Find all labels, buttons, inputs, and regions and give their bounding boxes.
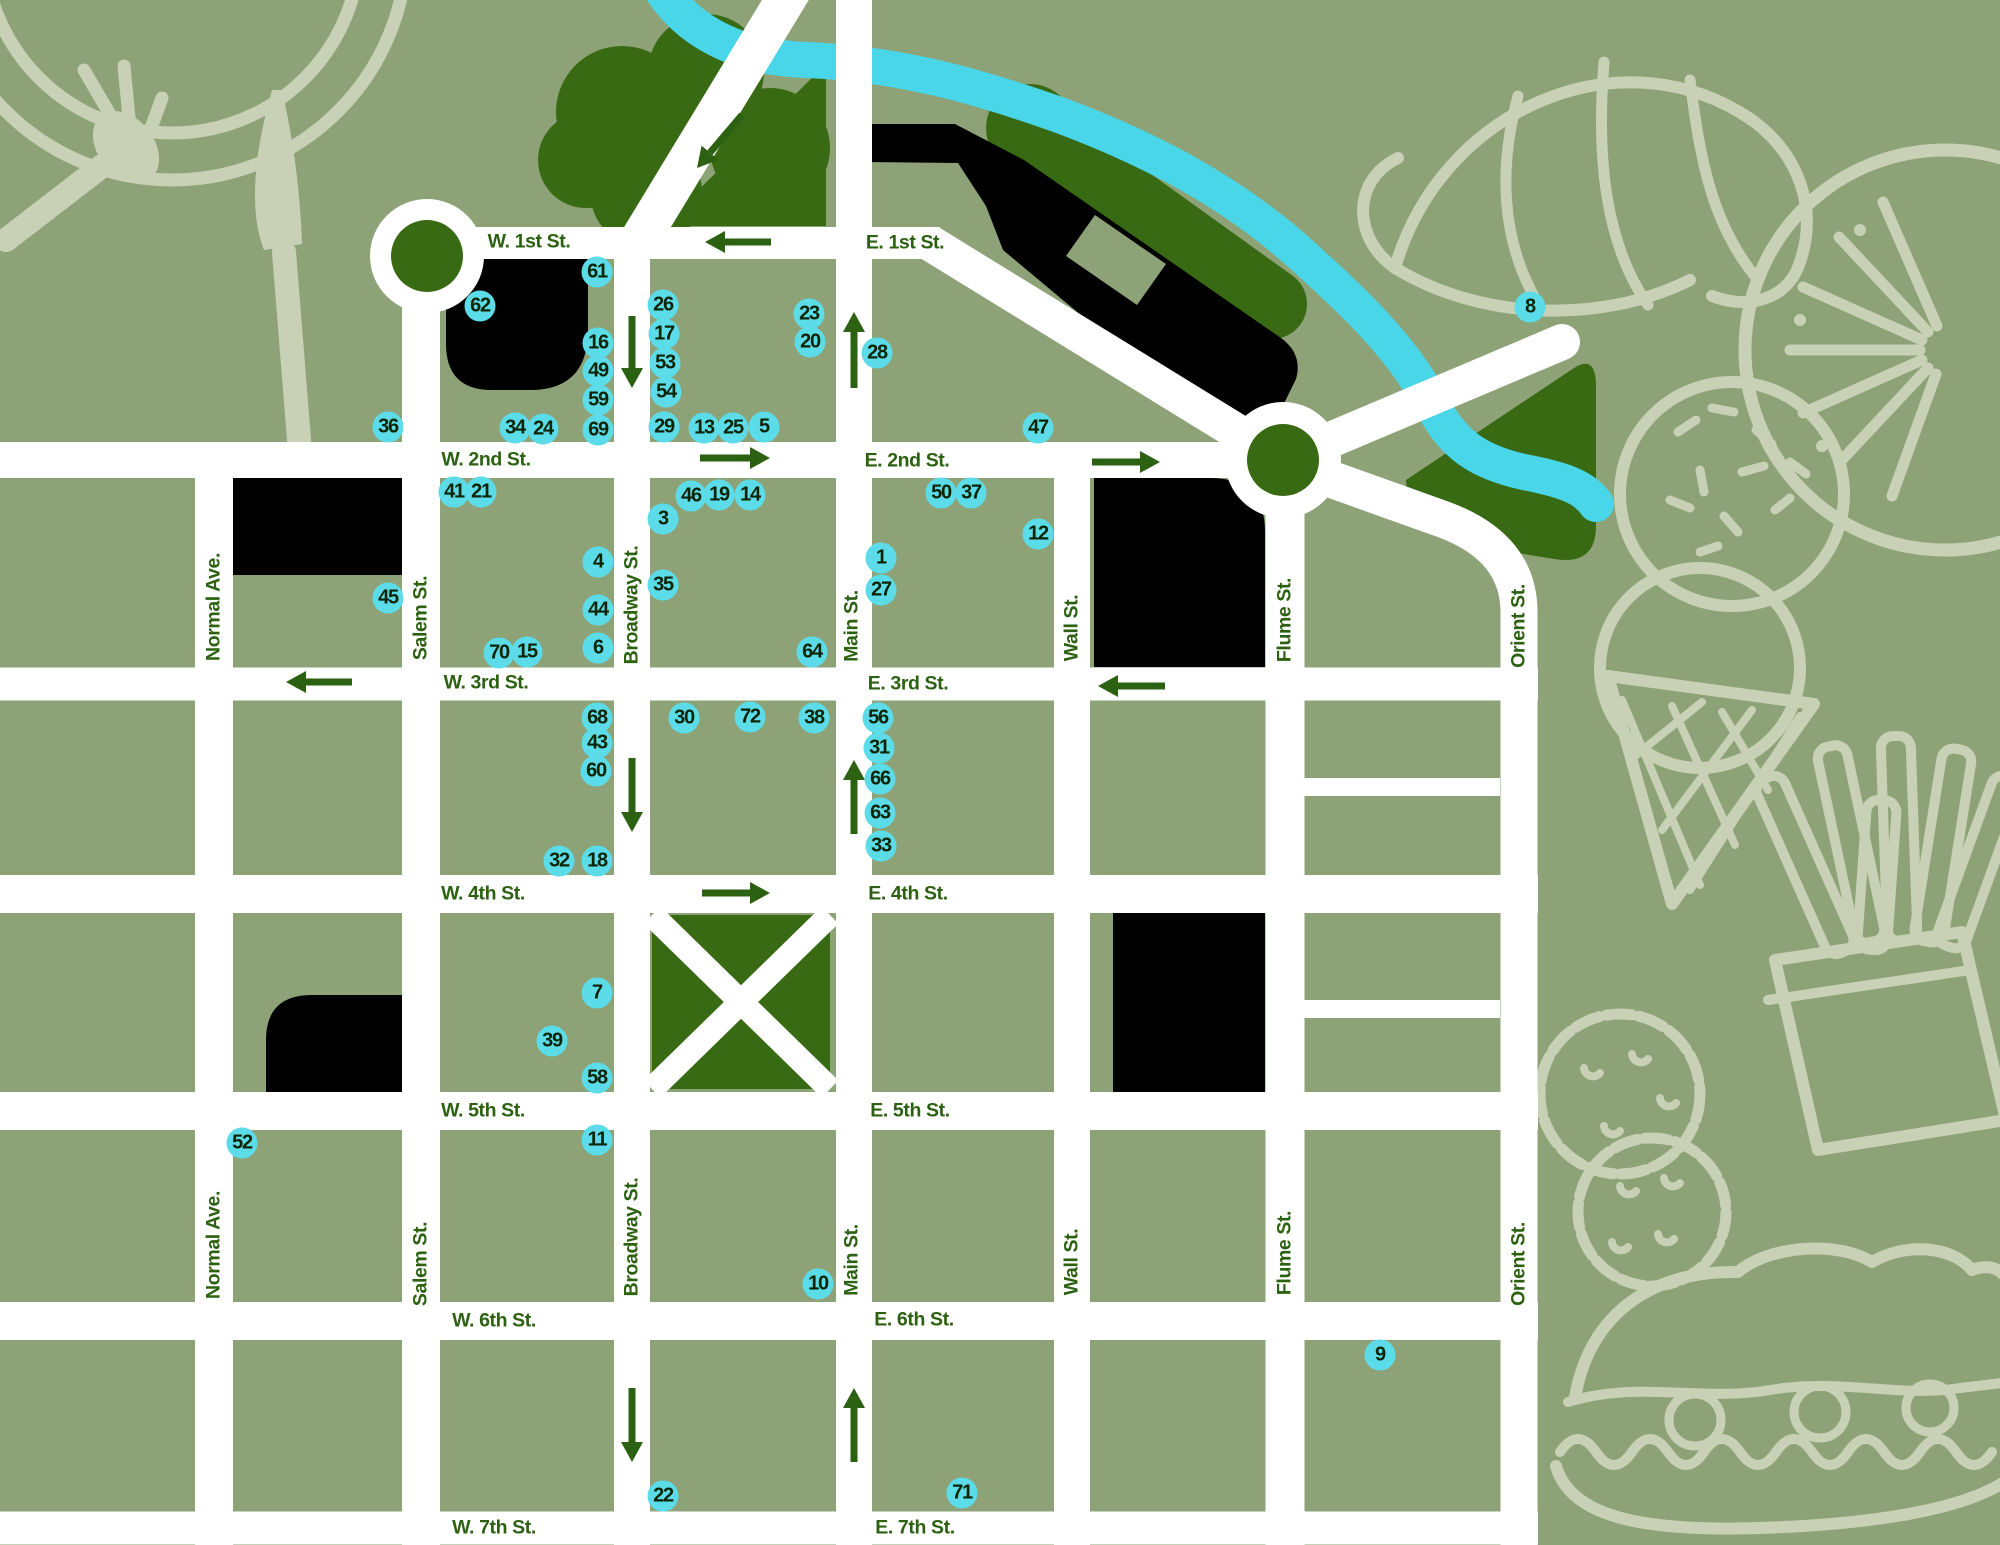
poi-marker-53[interactable]: 53 bbox=[650, 348, 681, 379]
poi-marker-46[interactable]: 46 bbox=[676, 481, 707, 512]
poi-marker-5[interactable]: 5 bbox=[749, 412, 780, 443]
poi-marker-34[interactable]: 34 bbox=[500, 413, 531, 444]
poi-marker-4[interactable]: 4 bbox=[583, 547, 614, 578]
poi-marker-59[interactable]: 59 bbox=[583, 385, 614, 416]
poi-marker-12[interactable]: 12 bbox=[1023, 519, 1054, 550]
poi-marker-44[interactable]: 44 bbox=[583, 595, 614, 626]
poi-marker-18[interactable]: 18 bbox=[582, 846, 613, 877]
poi-marker-36[interactable]: 36 bbox=[373, 412, 404, 443]
basemap-graphics bbox=[0, 0, 2000, 1545]
poi-marker-71[interactable]: 71 bbox=[947, 1478, 978, 1509]
poi-marker-69[interactable]: 69 bbox=[583, 415, 614, 446]
poi-marker-21[interactable]: 21 bbox=[466, 477, 497, 508]
poi-marker-49[interactable]: 49 bbox=[583, 356, 614, 387]
poi-marker-14[interactable]: 14 bbox=[735, 480, 766, 511]
poi-marker-64[interactable]: 64 bbox=[797, 637, 828, 668]
plate-fork-knife-illustration bbox=[0, 0, 407, 452]
building-block-2 bbox=[233, 478, 402, 575]
poi-marker-13[interactable]: 13 bbox=[689, 413, 720, 444]
poi-marker-72[interactable]: 72 bbox=[735, 702, 766, 733]
poi-marker-66[interactable]: 66 bbox=[865, 764, 896, 795]
poi-marker-43[interactable]: 43 bbox=[582, 728, 613, 759]
city-map: W. 1st St.E. 1st St.W. 2nd St.E. 2nd St.… bbox=[0, 0, 2000, 1545]
streets bbox=[0, 0, 1562, 1545]
poi-marker-45[interactable]: 45 bbox=[373, 583, 404, 614]
poi-marker-23[interactable]: 23 bbox=[794, 299, 825, 330]
building-block-3 bbox=[266, 995, 402, 1092]
poi-marker-27[interactable]: 27 bbox=[866, 575, 897, 606]
poi-marker-54[interactable]: 54 bbox=[651, 377, 682, 408]
roundabout-east bbox=[1225, 402, 1341, 518]
poi-marker-58[interactable]: 58 bbox=[582, 1063, 613, 1094]
poi-marker-52[interactable]: 52 bbox=[227, 1128, 258, 1159]
poi-marker-7[interactable]: 7 bbox=[582, 978, 613, 1009]
poi-marker-70[interactable]: 70 bbox=[484, 638, 515, 669]
poi-marker-10[interactable]: 10 bbox=[803, 1269, 834, 1300]
poi-marker-24[interactable]: 24 bbox=[528, 414, 559, 445]
poi-marker-11[interactable]: 11 bbox=[582, 1125, 613, 1156]
poi-marker-31[interactable]: 31 bbox=[864, 733, 895, 764]
sandwich-illustration bbox=[1556, 1249, 2000, 1529]
poi-marker-9[interactable]: 9 bbox=[1365, 1340, 1396, 1371]
poi-marker-63[interactable]: 63 bbox=[865, 798, 896, 829]
poi-marker-39[interactable]: 39 bbox=[537, 1026, 568, 1057]
poi-marker-1[interactable]: 1 bbox=[866, 543, 897, 574]
building-block-4 bbox=[1094, 478, 1265, 667]
poi-marker-50[interactable]: 50 bbox=[926, 478, 957, 509]
poi-marker-22[interactable]: 22 bbox=[648, 1481, 679, 1512]
poi-marker-26[interactable]: 26 bbox=[648, 290, 679, 321]
poi-marker-25[interactable]: 25 bbox=[718, 413, 749, 444]
poi-marker-8[interactable]: 8 bbox=[1515, 292, 1546, 323]
poi-marker-62[interactable]: 62 bbox=[465, 291, 496, 322]
poi-marker-33[interactable]: 33 bbox=[866, 831, 897, 862]
fries-illustration bbox=[1753, 736, 2000, 1150]
building-block-5 bbox=[1113, 913, 1265, 1092]
poi-marker-19[interactable]: 19 bbox=[704, 480, 735, 511]
poi-marker-17[interactable]: 17 bbox=[649, 319, 680, 350]
poi-marker-16[interactable]: 16 bbox=[583, 328, 614, 359]
poi-marker-38[interactable]: 38 bbox=[799, 703, 830, 734]
poi-marker-6[interactable]: 6 bbox=[583, 633, 614, 664]
croissant-illustration bbox=[1363, 62, 1807, 311]
citrus-slice-illustration bbox=[1745, 150, 2000, 550]
poi-marker-30[interactable]: 30 bbox=[669, 703, 700, 734]
poi-marker-56[interactable]: 56 bbox=[863, 703, 894, 734]
poi-marker-32[interactable]: 32 bbox=[544, 846, 575, 877]
poi-marker-35[interactable]: 35 bbox=[648, 570, 679, 601]
poi-marker-37[interactable]: 37 bbox=[956, 478, 987, 509]
poi-marker-60[interactable]: 60 bbox=[581, 756, 612, 787]
poi-marker-29[interactable]: 29 bbox=[649, 412, 680, 443]
poi-marker-15[interactable]: 15 bbox=[512, 637, 543, 668]
poi-marker-47[interactable]: 47 bbox=[1023, 413, 1054, 444]
poi-marker-61[interactable]: 61 bbox=[582, 257, 613, 288]
poi-marker-28[interactable]: 28 bbox=[862, 338, 893, 369]
poi-marker-20[interactable]: 20 bbox=[795, 327, 826, 358]
pickles-illustration bbox=[1540, 1014, 1726, 1286]
poi-marker-3[interactable]: 3 bbox=[648, 504, 679, 535]
